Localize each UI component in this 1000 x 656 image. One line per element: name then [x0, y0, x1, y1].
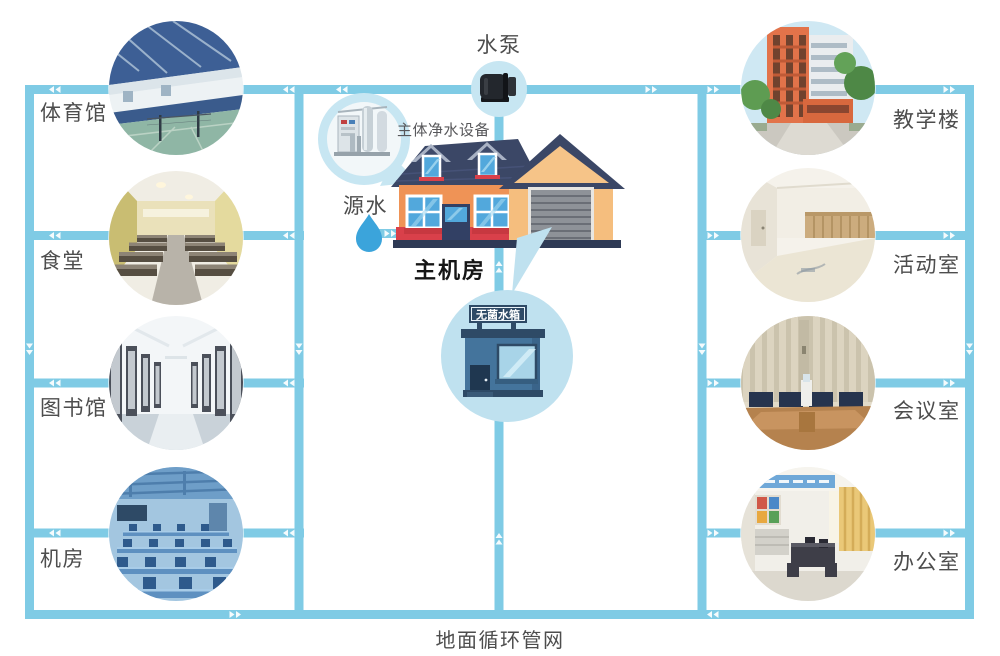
tank-bubble: 无菌水箱: [441, 290, 573, 422]
facility-label-gymnasium: 体育馆: [40, 97, 108, 127]
ground-loop-label: 地面循环管网: [400, 624, 600, 653]
water-pump: [471, 61, 527, 117]
purifier-label: 主体净水设备: [397, 119, 490, 140]
facility-label-server-room: 机房: [40, 543, 85, 573]
facility-label-teaching-building: 教学楼: [893, 104, 961, 134]
facility-label-library: 图书馆: [40, 392, 108, 422]
facility-label-meeting-room: 会议室: [893, 395, 961, 425]
center-illustrations: 无菌水箱: [0, 0, 1000, 656]
facility-label-cafeteria: 食堂: [40, 245, 85, 275]
water-system-diagram: 无菌水箱: [0, 0, 1000, 656]
source-water-label: 源水: [343, 190, 388, 220]
main-room-label: 主机房: [414, 253, 486, 285]
facility-label-activity-room: 活动室: [893, 249, 961, 279]
pump-label: 水泵: [454, 29, 544, 59]
tank-sign-text: 无菌水箱: [475, 308, 520, 322]
main-building-illustration: [391, 134, 625, 248]
facility-label-office: 办公室: [893, 546, 961, 576]
